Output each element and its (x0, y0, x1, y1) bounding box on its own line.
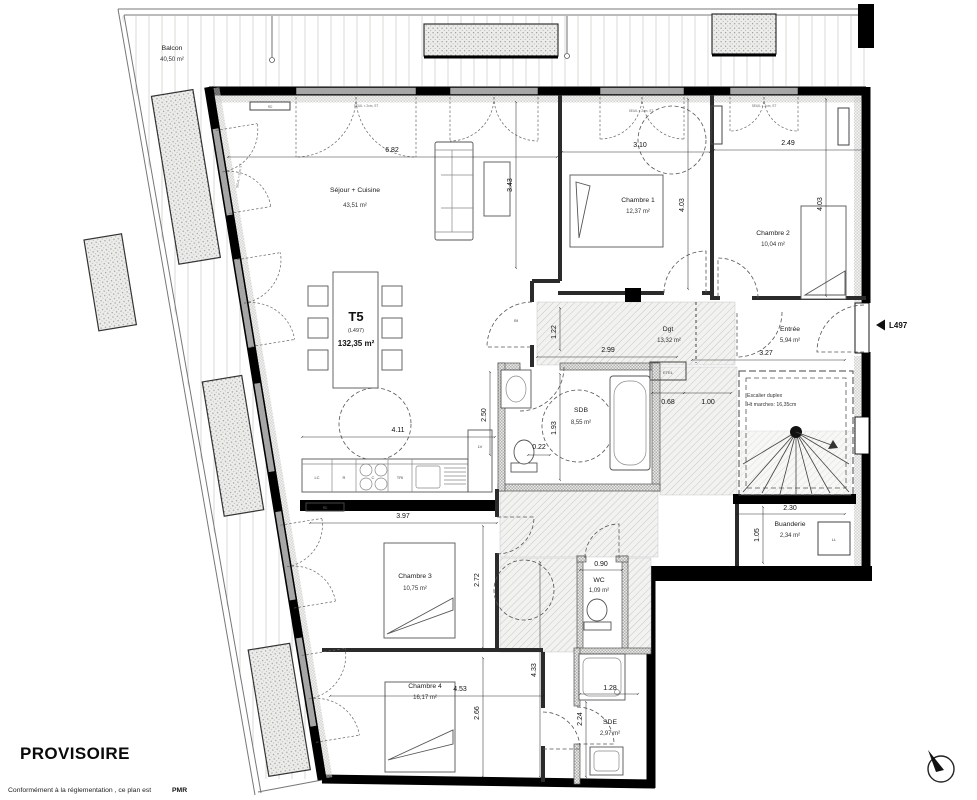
unit-lot: (L497) (348, 328, 364, 334)
room-name: Chambre 3 (398, 573, 432, 580)
entry-door-ref: L497 (889, 321, 908, 330)
bed-ch2 (801, 206, 846, 299)
wall-wc (622, 556, 628, 652)
radiator-label: RD (268, 105, 273, 109)
dim-label: 4.11 (391, 427, 404, 434)
dim-label: 0.22 (532, 444, 546, 451)
room-name: WC (593, 577, 604, 584)
dim-label: 0.68 (661, 399, 675, 406)
room-area: 8,55 m² (571, 420, 591, 426)
room-area: 43,51 m² (343, 203, 367, 209)
room-name: Escalier duplex (747, 393, 783, 399)
door-sejour-dgt (487, 302, 532, 347)
dim-label: 3.27 (759, 350, 773, 357)
room-name: Balcon (162, 45, 183, 52)
bathtub (610, 376, 650, 470)
hall-hatch (628, 558, 651, 650)
dim-label: 4.03 (679, 198, 686, 212)
dishwasher-label: LV (478, 444, 483, 449)
site-boundary (84, 4, 874, 795)
french-door (600, 97, 684, 139)
wall-sdb (560, 363, 658, 370)
room-area: 1,09 m² (589, 588, 609, 594)
dim-label: 3.10 (633, 142, 647, 149)
door-ch1 (664, 251, 706, 293)
dim-label: 2.49 (781, 140, 795, 147)
hall-hatch (500, 491, 658, 557)
room-area: 16,17 m² (413, 695, 437, 701)
wall-bottom (322, 779, 655, 784)
dim-label: 4.03 (817, 197, 824, 211)
door-tag: Bf (514, 318, 519, 323)
dim-label: 2.30 (783, 505, 797, 512)
north-compass-icon (928, 750, 954, 782)
dim-label: 6.82 (385, 147, 399, 154)
duct-block (625, 288, 641, 302)
circulation-hatch (500, 302, 737, 652)
room-name: Chambre 1 (621, 197, 655, 204)
dim-label: 1.28 (603, 685, 617, 692)
regulation-note: Conformément à la réglementation , ce pl… (8, 787, 151, 794)
room-area: 2,34 m² (780, 533, 800, 539)
chair (382, 350, 402, 370)
insulation-band (854, 356, 861, 566)
duplex-stairs (739, 371, 853, 495)
planter (712, 14, 776, 54)
regulation-note-pmr: PMR (172, 787, 187, 794)
plan-marks: L497 PROVISOIRE Conformément à la réglem… (8, 320, 954, 795)
entry-arrow-icon (876, 320, 885, 331)
room-area: 13,32 m² (657, 338, 681, 344)
threshold-note: SEUIL < 2cm, ST (354, 104, 379, 108)
dim-label: 2.50 (481, 408, 488, 422)
cooktop-label: C (372, 475, 375, 480)
provisional-stamp: PROVISOIRE (20, 744, 130, 763)
dim-label: 3.43 (507, 178, 514, 192)
room-area: 40,50 m² (160, 57, 184, 63)
room-area: 10,75 m² (403, 586, 427, 592)
threshold-note: SEUIL < 2cm, ST (752, 104, 777, 108)
unit-type: T5 (348, 309, 363, 324)
dim-label: 1.05 (754, 528, 761, 542)
window-sliding (600, 88, 684, 95)
room-note: Ht marches: 16,35cm (747, 402, 796, 408)
window-sliding (730, 88, 798, 95)
dim-label: 2.66 (474, 706, 481, 720)
room-area: 2,97 m² (600, 731, 620, 737)
planter (84, 234, 136, 331)
dim-label: 4.53 (453, 686, 467, 693)
hall-hatch (660, 367, 737, 495)
etel-label: ETEL (663, 370, 674, 375)
dim-label: 2.99 (601, 347, 615, 354)
kitchen-unit-label: TRI (397, 475, 403, 480)
balcony-divider-post (565, 54, 570, 59)
room-name: Entrée (780, 326, 800, 333)
hall-hatch (537, 302, 735, 365)
floor-plan-drawing: 6.82 3.43 3.10 4.03 2.49 4.03 3.27 2.99 … (0, 0, 977, 800)
shower (579, 654, 625, 700)
dim-label: 1.93 (551, 421, 558, 435)
radiator-label: RD (323, 506, 328, 510)
room-name: SDB (574, 407, 588, 414)
room-area: 10,04 m² (761, 242, 785, 248)
door-ch2 (718, 258, 758, 298)
kitchen-unit-label: LC (314, 475, 319, 480)
stair-window (855, 417, 869, 454)
dim-label: 1.22 (551, 325, 558, 339)
threshold-note: SEUIL < 2cm, ST (629, 109, 654, 113)
pmr-circle (339, 388, 411, 460)
pmr-circle (638, 106, 706, 174)
wall-sde (574, 744, 580, 784)
balcony-divider-post (270, 58, 275, 63)
room-name: Chambre 4 (408, 683, 442, 690)
insulation-band (213, 96, 864, 103)
room-name: Séjour + Cuisine (330, 187, 380, 194)
building-corner-block (858, 4, 874, 48)
wc-toilet (584, 599, 611, 630)
room-area: 12,37 m² (626, 209, 650, 215)
chair (308, 350, 328, 370)
dim-label: 4.33 (531, 663, 538, 677)
wall-sdb (498, 484, 660, 491)
room-name: Dgt (663, 326, 674, 333)
french-door (450, 97, 538, 141)
room-area: 5,94 m² (780, 338, 800, 344)
room-name: SDE (603, 719, 617, 726)
sdb-sink (501, 370, 531, 408)
wall-bottom-right (648, 566, 872, 581)
unit-area: 132,35 m² (338, 339, 375, 348)
site-boundary-line (258, 780, 322, 792)
dim-label: 0.90 (594, 561, 608, 568)
shaft (838, 108, 849, 145)
dim-label: 1.00 (701, 399, 715, 406)
room-name: Buanderie (775, 521, 806, 528)
sde-basin (590, 747, 623, 775)
kitchen-unit-label: R (343, 475, 346, 480)
dim-label: 2.24 (577, 712, 584, 726)
chair (308, 318, 328, 338)
dishwasher (468, 430, 492, 492)
wall-wc (616, 556, 628, 562)
wall-wc (577, 556, 583, 652)
planter (424, 24, 558, 56)
chair (308, 286, 328, 306)
chair (382, 318, 402, 338)
dim-label: 2.72 (474, 573, 481, 587)
insulation-band (854, 97, 861, 303)
sofa (435, 142, 473, 240)
wall-sdb (652, 363, 660, 491)
entry-door-leaf (855, 303, 869, 353)
room-name: Chambre 2 (756, 230, 790, 237)
chair (382, 286, 402, 306)
door-ch4 (543, 712, 580, 749)
washer-label: LL (832, 537, 837, 542)
dim-label: 3.97 (396, 513, 410, 520)
wall-wc-sde (577, 648, 651, 654)
kitchen-counter (302, 430, 492, 492)
window-sliding (296, 88, 416, 95)
wall-kitchen-ch3 (300, 500, 497, 511)
window-sliding (450, 88, 538, 95)
floor-plan-page: 6.82 3.43 3.10 4.03 2.49 4.03 3.27 2.99 … (0, 0, 977, 800)
